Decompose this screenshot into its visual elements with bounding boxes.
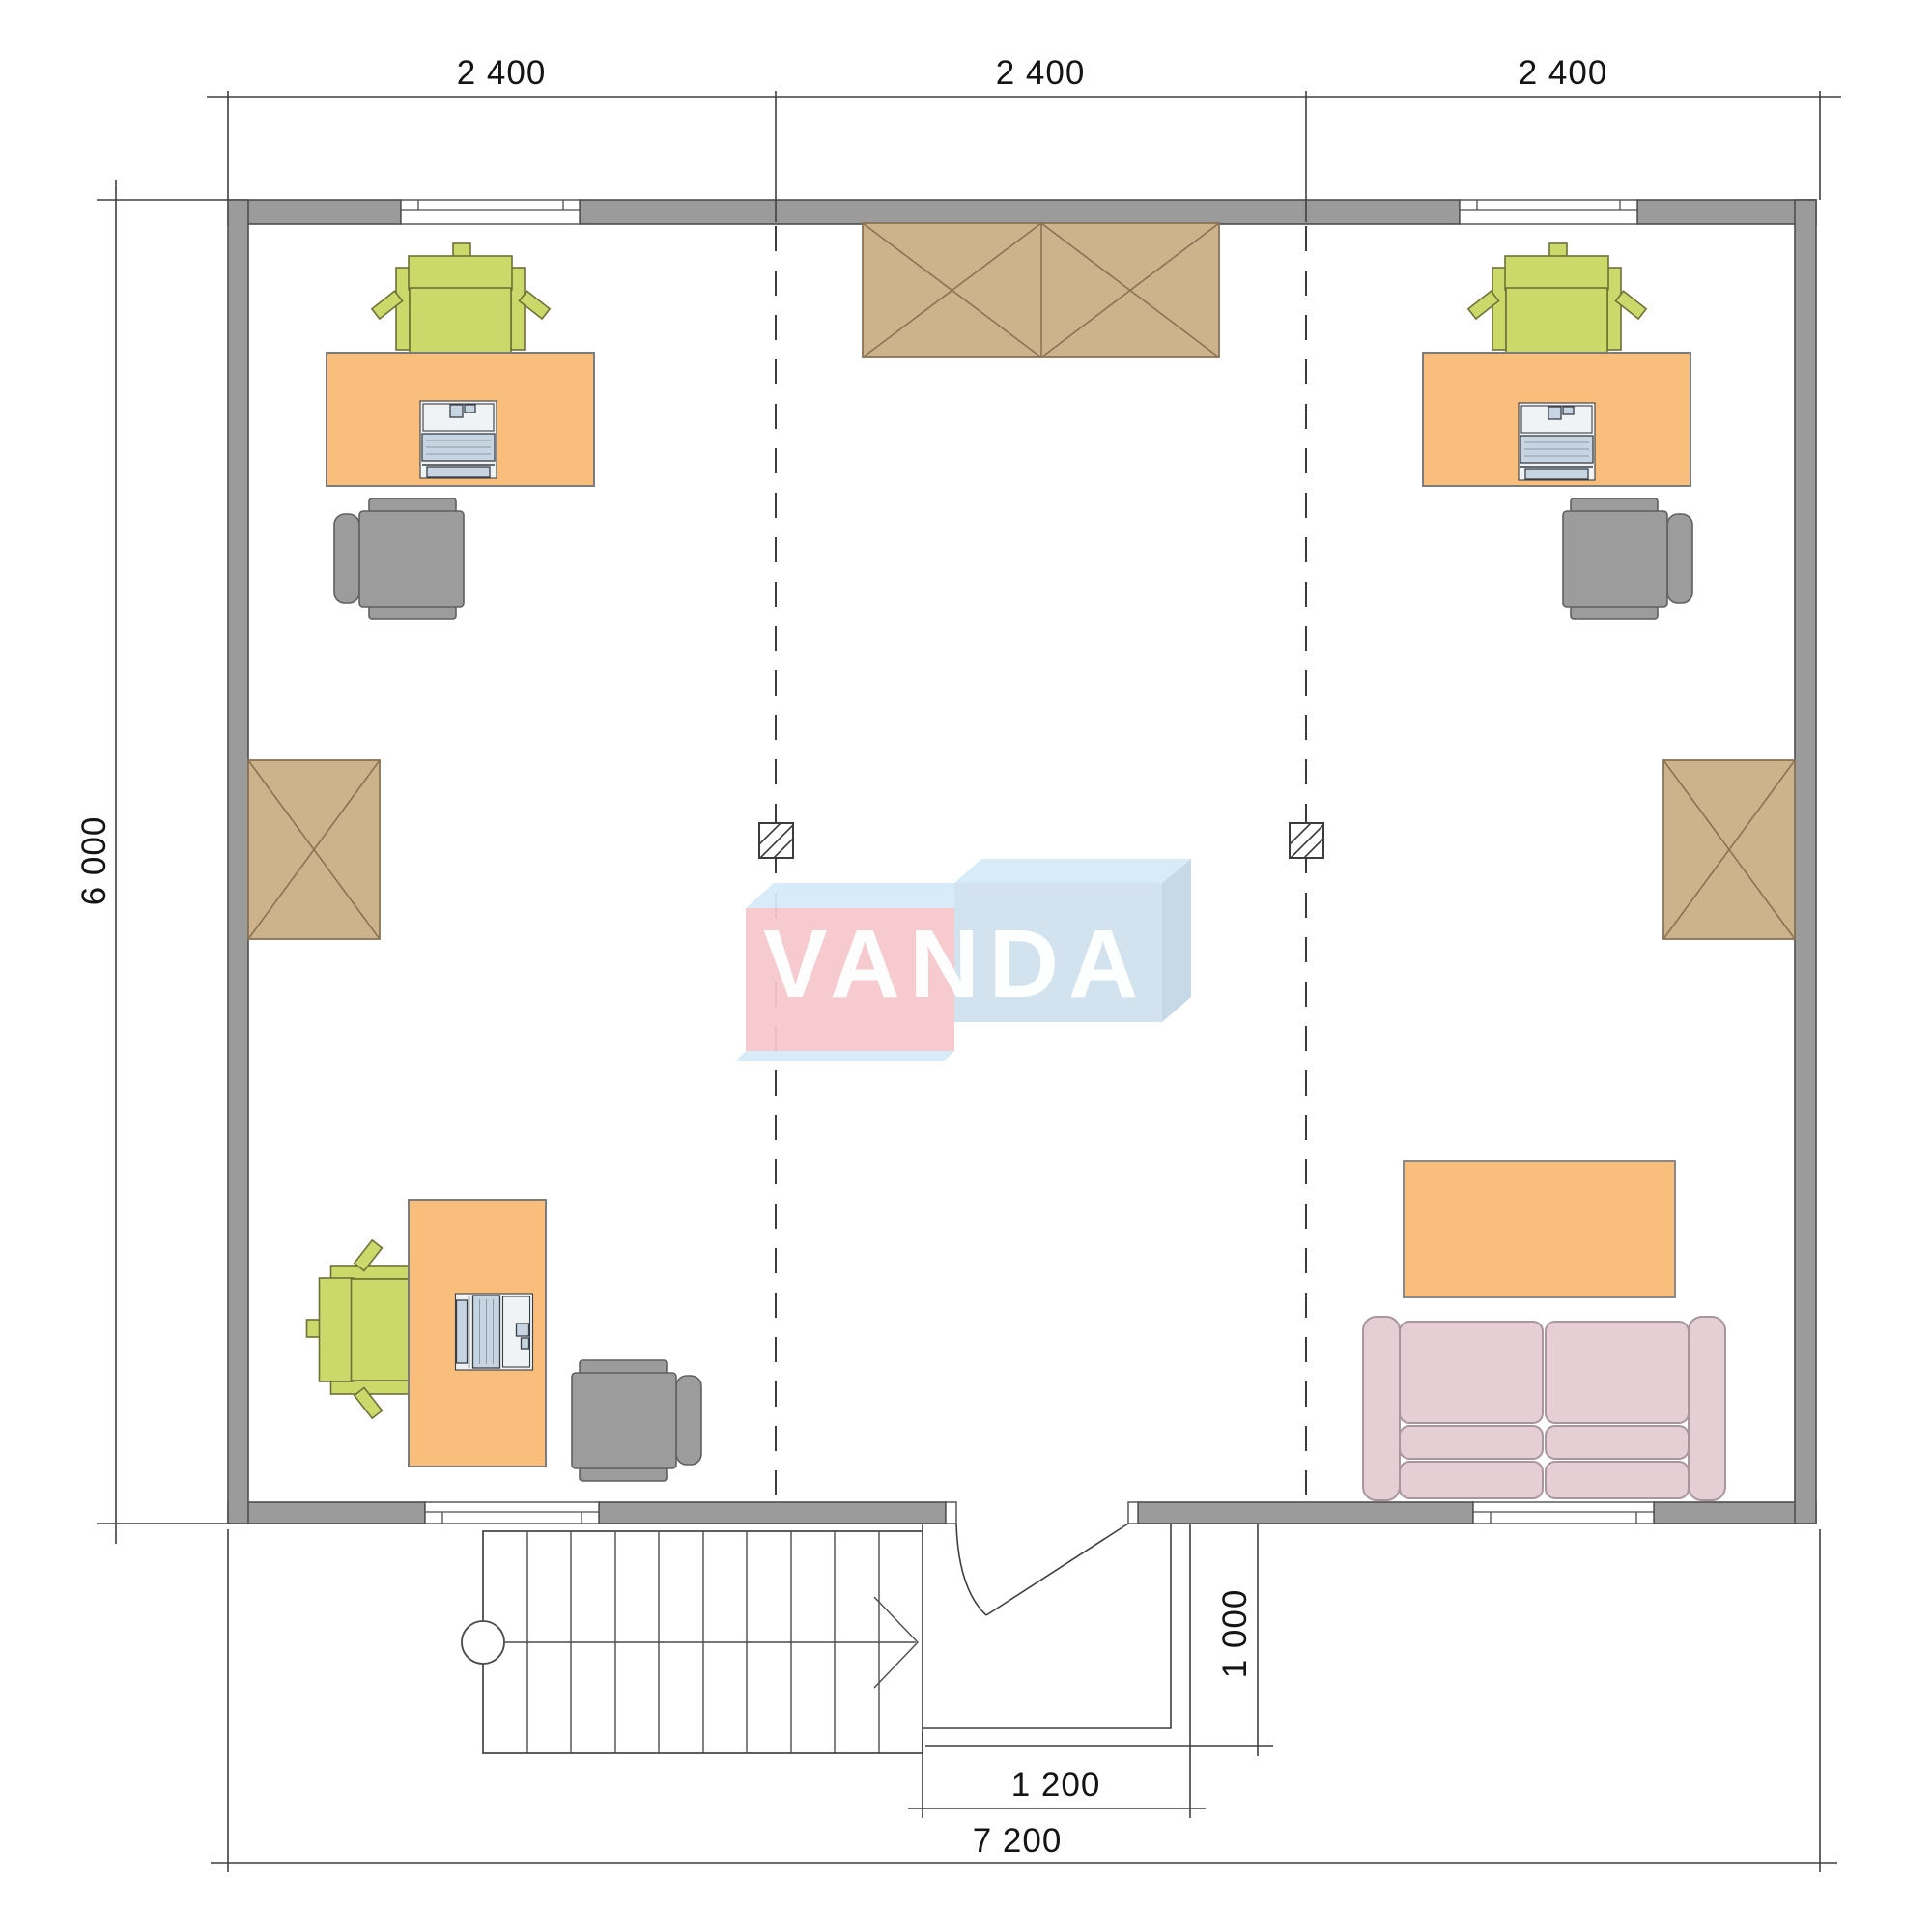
bottom-wall-seg — [599, 1502, 946, 1524]
window-top-left — [401, 200, 580, 224]
bottom-wall-seg — [1654, 1502, 1816, 1524]
dim-label-top-3: 2 400 — [1519, 54, 1608, 93]
cabinet-right — [1663, 760, 1795, 939]
bottom-wall-seg — [228, 1502, 425, 1524]
right-wall — [1795, 200, 1816, 1524]
dim-label-total-width: 7 200 — [973, 1822, 1063, 1861]
lounge-bottom-right — [1363, 1161, 1725, 1500]
top-wall-seg — [580, 200, 1460, 224]
task-chair — [334, 498, 464, 619]
staircase — [462, 1531, 923, 1753]
top-wall-seg — [1637, 200, 1816, 224]
dim-label-top-2: 2 400 — [996, 54, 1086, 93]
office-chair — [372, 243, 550, 355]
entry-door — [946, 1502, 1138, 1615]
dim-label-entry-depth: 1 000 — [1216, 1589, 1255, 1679]
column-symbol — [759, 823, 793, 858]
task-chair — [572, 1360, 701, 1481]
coffee-table — [1404, 1161, 1675, 1297]
dim-label-entry-width: 1 200 — [1011, 1766, 1101, 1805]
cabinet-left — [248, 760, 380, 939]
laptop — [1519, 403, 1595, 480]
laptop — [456, 1294, 533, 1370]
sofa — [1363, 1317, 1725, 1500]
office-chair — [1468, 243, 1646, 355]
dim-label-height: 6 000 — [75, 816, 114, 906]
window-top-right — [1460, 200, 1637, 224]
stair-start-circle — [462, 1621, 504, 1664]
laptop — [420, 401, 497, 478]
floor-plan-canvas: VANDA 2 400 2 400 2 400 6 000 1 000 1 20… — [0, 0, 1932, 1908]
door-swing-arc — [956, 1524, 986, 1615]
cabinet-top-center — [863, 223, 1219, 357]
workstation-top-right — [1423, 243, 1692, 619]
task-chair — [1563, 498, 1692, 619]
workstation-bottom-left — [307, 1200, 702, 1481]
left-wall — [228, 200, 248, 1524]
door-leaf — [986, 1524, 1128, 1615]
workstation-top-left — [327, 243, 594, 619]
top-wall-seg — [228, 200, 401, 224]
bottom-wall-seg — [1138, 1502, 1473, 1524]
office-chair — [307, 1240, 418, 1418]
column-symbol — [1290, 823, 1323, 858]
dim-label-top-1: 2 400 — [457, 54, 547, 93]
window-bottom-right — [1473, 1502, 1654, 1524]
window-bottom-left — [425, 1502, 599, 1524]
watermark-text: VANDA — [763, 916, 1148, 1012]
